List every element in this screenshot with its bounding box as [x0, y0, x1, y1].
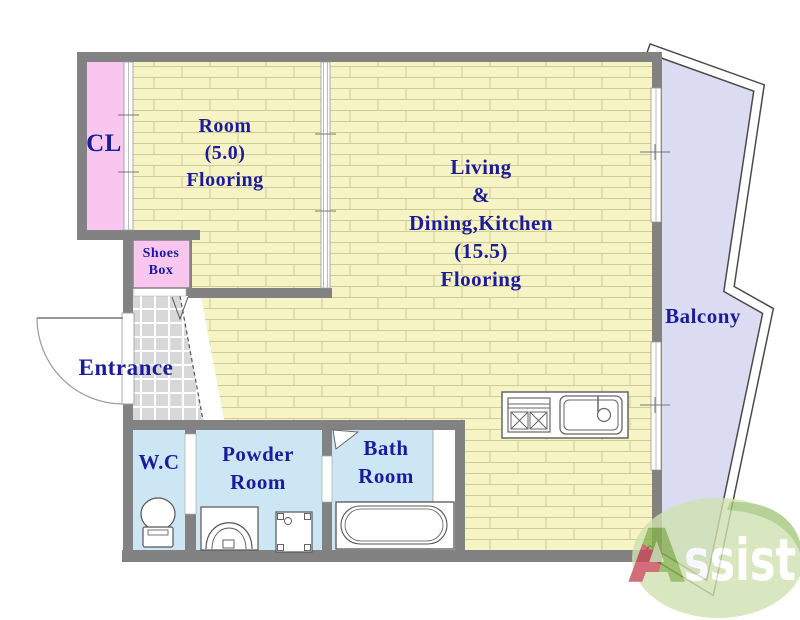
label-bath-room: Bath Room: [358, 438, 414, 494]
washing-machine-icon: [276, 512, 312, 552]
wall-room-bottom: [188, 288, 332, 298]
wall-below-closet: [77, 230, 200, 240]
powder-bath-door-opening: [322, 456, 332, 502]
label-powder-room: Powder Room: [222, 444, 294, 500]
label-wc: W.C: [139, 452, 180, 473]
label-ldk: Living & Dining,Kitchen (15.5) Flooring: [409, 157, 553, 297]
room-ldk-partition: [321, 62, 330, 288]
wall-bottom: [122, 550, 662, 562]
assist-logo: ssist: [618, 498, 800, 618]
label-balcony: Balcony: [665, 306, 741, 327]
entrance-threshold: [134, 288, 186, 296]
wall-left-mid: [123, 240, 133, 315]
wall-bath-right: [455, 420, 465, 562]
label-entrance: Entrance: [79, 356, 174, 379]
wall-wetrooms-top: [123, 420, 465, 430]
bathtub-icon: [336, 502, 454, 549]
kitchen-sink-icon: [560, 396, 622, 434]
toilet-icon: [141, 498, 175, 547]
label-closet: CL: [86, 131, 122, 156]
vanity-sink-icon: [201, 507, 258, 550]
label-shoes-box: Shoes Box: [143, 247, 180, 278]
label-bedroom: Room (5.0) Flooring: [186, 116, 263, 197]
logo-text: ssist: [684, 526, 796, 594]
wall-top: [77, 52, 656, 62]
kitchen-counter: [502, 392, 628, 438]
floorplan: A: [0, 0, 800, 620]
wc-door-opening: [185, 434, 196, 514]
